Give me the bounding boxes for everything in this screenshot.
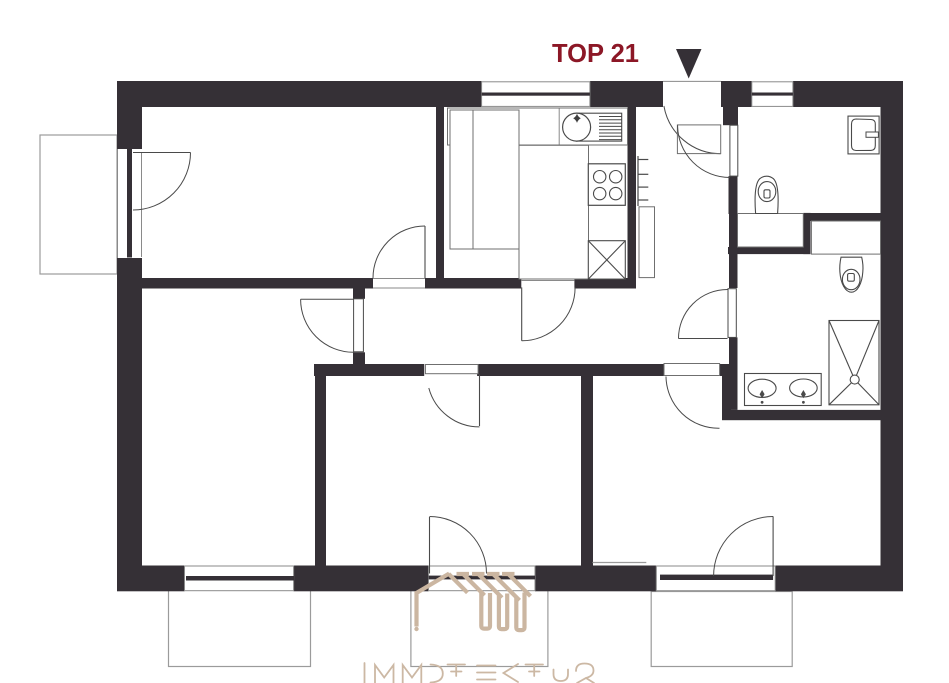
svg-text:TOP 21: TOP 21: [552, 40, 639, 68]
